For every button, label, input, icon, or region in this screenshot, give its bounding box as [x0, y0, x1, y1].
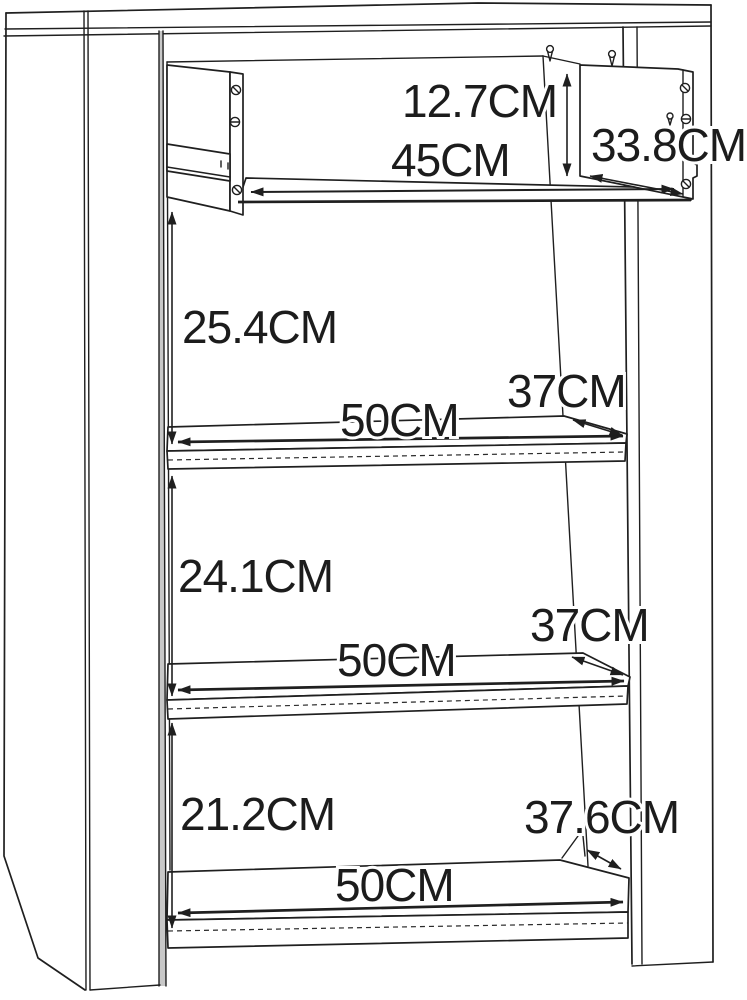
label-middle-shelf-depth: 37CM — [530, 599, 649, 651]
drawer-rail-plate — [167, 65, 230, 211]
label-bottom-shelf-width: 50CM — [335, 859, 454, 911]
screw-icon — [231, 85, 240, 94]
left-panel-outer-edge — [4, 13, 85, 990]
left-panel-front-edge-a — [84, 11, 86, 990]
screw-icon — [680, 83, 689, 92]
dim-arrow-bottom-shelf-depth — [587, 850, 621, 869]
label-upper-shelf-width: 50CM — [340, 394, 459, 446]
left-panel-bottom-inner-edge — [90, 985, 160, 990]
cabinet-dimension-diagram: 12.7CM 45CM 33.8CM 25.4CM 50CM 37CM 24.1… — [0, 0, 747, 1000]
top-panel — [4, 3, 711, 36]
top-panel-top-edge — [6, 3, 711, 13]
label-drawer-depth: 33.8CM — [591, 119, 746, 171]
label-bottom-shelf-depth: 37.6CM — [524, 791, 679, 843]
screw-icon — [232, 185, 241, 194]
label-drawer-height: 12.7CM — [402, 75, 557, 127]
label-lower-section-height: 21.2CM — [180, 788, 335, 840]
diagram-canvas: 12.7CM 45CM 33.8CM 25.4CM 50CM 37CM 24.1… — [0, 0, 747, 1000]
label-upper-section-height: 25.4CM — [182, 301, 337, 353]
screw-icon — [230, 117, 239, 126]
left-panel-front-edge-b — [88, 11, 90, 990]
screw-icon — [681, 179, 690, 188]
hanging-hook-icon — [609, 51, 616, 66]
label-middle-section-height: 24.1CM — [178, 550, 333, 602]
label-upper-shelf-depth: 37CM — [507, 365, 626, 417]
label-middle-shelf-width: 50CM — [337, 634, 456, 686]
right-panel-bottom-edge — [632, 962, 713, 966]
label-drawer-width: 45CM — [391, 134, 510, 186]
left-side-panel — [4, 11, 166, 990]
back-top-edge-left — [167, 56, 543, 62]
